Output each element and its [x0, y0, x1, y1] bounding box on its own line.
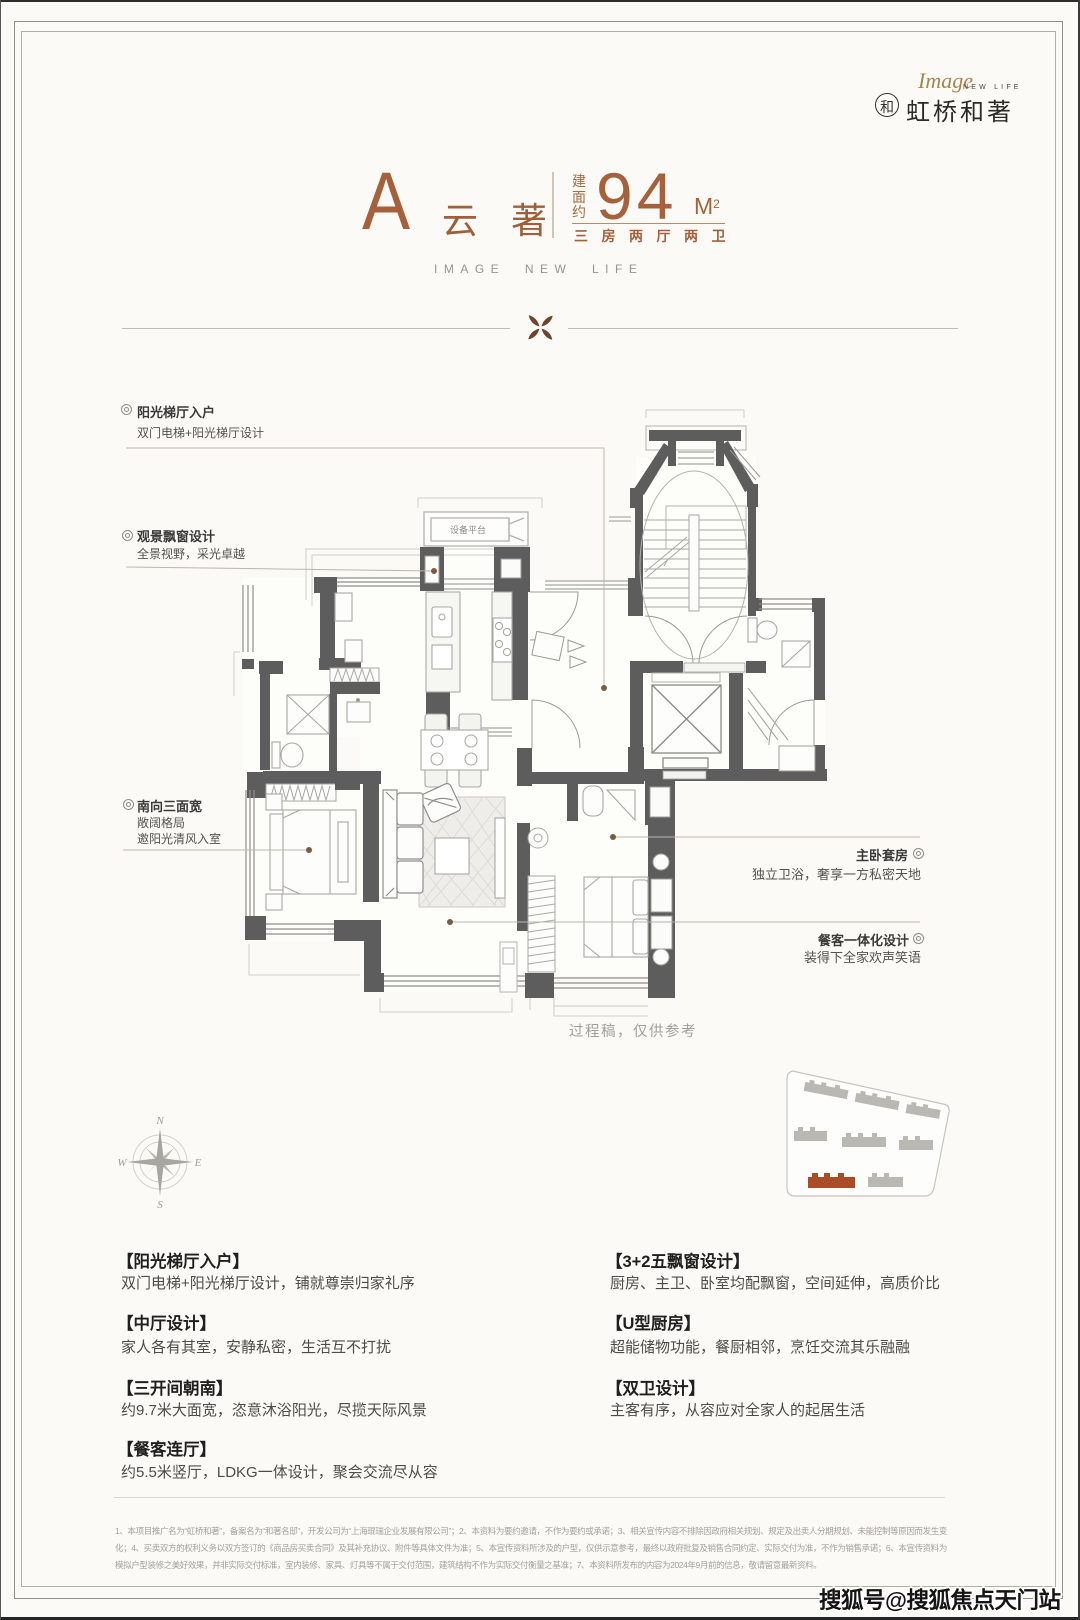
svg-text:W: W [117, 1157, 127, 1169]
svg-text:N: N [155, 1115, 164, 1127]
svg-text:E: E [194, 1157, 202, 1169]
svg-text:S: S [157, 1199, 163, 1211]
svg-text:设备平台: 设备平台 [450, 524, 486, 535]
